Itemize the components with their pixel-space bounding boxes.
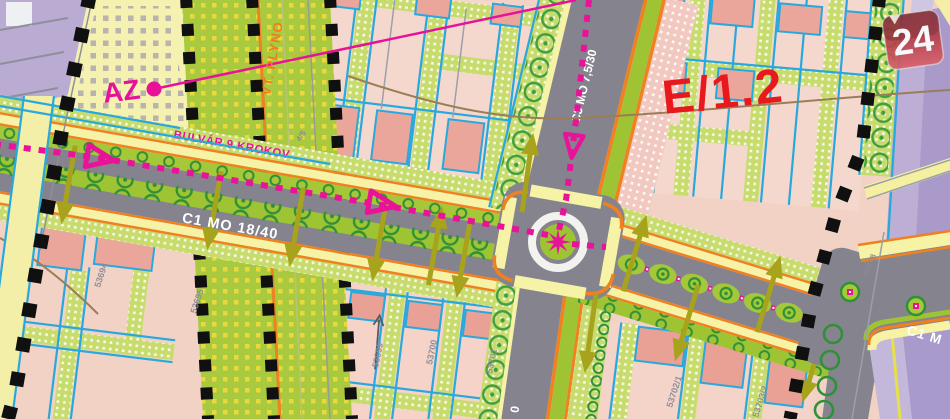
roundabout-node-star [545, 229, 571, 255]
az-node-dot [147, 82, 162, 97]
zoning-map-page: BULVÁR 9 KROKOV C1 MO 18/40 C3 MO 7,5/30… [0, 0, 950, 419]
logo-text: 24 [890, 17, 937, 63]
zoning-map-canvas[interactable]: BULVÁR 9 KROKOV C1 MO 18/40 C3 MO 7,5/30… [0, 0, 950, 419]
az-label: AZ [101, 74, 142, 109]
logo-badge-24[interactable]: 24 [882, 9, 945, 70]
